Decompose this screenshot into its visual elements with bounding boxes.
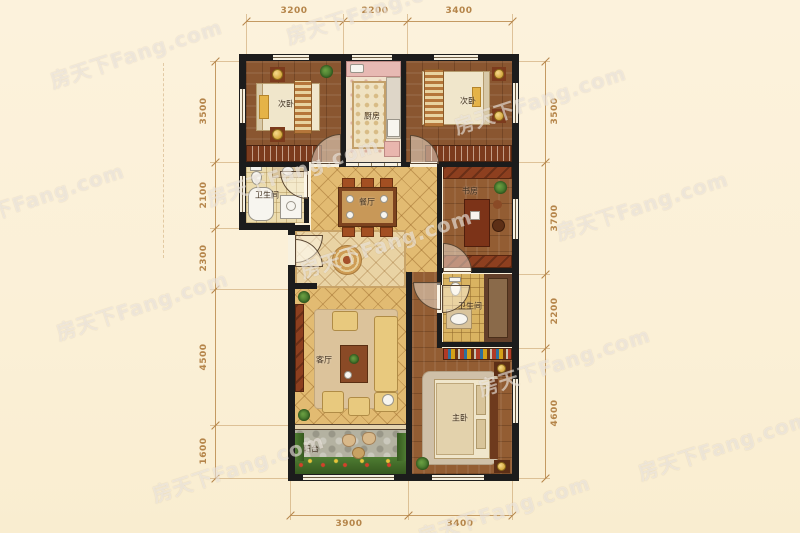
watermark: 房天下Fang.com (52, 263, 232, 346)
desk-paper (470, 211, 480, 220)
window (512, 83, 519, 123)
washer-door (286, 201, 296, 211)
wall-stub-living (288, 283, 317, 289)
lamp (497, 364, 506, 373)
table-flowers (349, 354, 359, 364)
watermark: 房天下Fang.com (552, 163, 732, 246)
kitchen-sink (350, 64, 364, 73)
label-living: 客厅 (316, 355, 332, 366)
balcony-chair (342, 434, 356, 447)
dim-right-4: 4600 (550, 399, 560, 426)
dining-chair (361, 227, 374, 237)
desk-chair (492, 219, 505, 232)
room-corridor-tile (406, 230, 437, 272)
tv-cabinet (295, 304, 304, 392)
dim-left-2: 2100 (199, 181, 209, 208)
dimension-line-bottom (290, 515, 512, 516)
label-bedroom-topleft: 次卧 (278, 99, 294, 110)
plant (494, 181, 507, 194)
bookshelf (443, 348, 512, 360)
label-dining: 餐厅 (359, 197, 375, 208)
lamp (497, 462, 506, 471)
plate (344, 371, 352, 379)
sofa-long (374, 316, 398, 392)
window (239, 89, 246, 123)
fridge (387, 119, 400, 137)
window (239, 176, 246, 212)
plant (416, 457, 429, 470)
desk (464, 199, 490, 247)
sofa-single (348, 397, 370, 416)
lamp (494, 69, 504, 79)
floor-medallion (332, 245, 362, 275)
window (512, 379, 519, 423)
study-cabinet-top (443, 166, 512, 179)
lamp (272, 69, 283, 80)
bed-pillow (259, 95, 269, 119)
window (273, 54, 309, 61)
extension-dashed-line (163, 63, 164, 258)
plant (298, 409, 310, 421)
balcony-sliding-door (295, 424, 406, 430)
dim-bottom-2: 3400 (446, 519, 473, 529)
label-study: 书房 (462, 186, 478, 197)
sofa-single (332, 311, 358, 331)
wall-bath-right-bottom (437, 342, 512, 347)
pillow (476, 385, 486, 415)
wall-living-right (406, 272, 412, 474)
balcony-table (352, 447, 365, 459)
balcony-plants-right (397, 433, 406, 461)
label-kitchen: 厨房 (364, 111, 380, 122)
dimension-line-top (246, 21, 512, 22)
window (352, 54, 392, 61)
label-balcony: 阳台 (303, 444, 319, 455)
window (432, 474, 484, 481)
lamp (272, 129, 283, 140)
watermark: 房天下Fang.com (0, 155, 128, 238)
dim-left-5: 1600 (199, 437, 209, 464)
window (434, 54, 478, 61)
side-table (382, 394, 394, 406)
plate (346, 195, 354, 203)
dim-left-4: 4500 (199, 343, 209, 370)
lamp (494, 111, 504, 121)
sink (450, 313, 468, 325)
flower-pot (493, 200, 502, 209)
entry-opening (288, 235, 295, 265)
label-bedroom-topright: 次卧 (460, 96, 476, 107)
dim-left-3: 2300 (199, 244, 209, 271)
floorplan-image: 3200 2200 3400 3500 2100 2300 4500 1600 … (0, 0, 800, 533)
wall-kitchen-right (401, 61, 406, 162)
floorplan: 次卧 厨房 次卧 卫生间 餐厅 书房 卫生间 客厅 主卧 阳台 (246, 61, 512, 481)
label-bath-left: 卫生间 (255, 190, 279, 201)
dim-right-1: 3500 (550, 97, 560, 124)
balcony-chair (362, 432, 376, 445)
bed-runner (424, 69, 444, 127)
watermark: 房天下Fang.com (46, 11, 226, 94)
balcony-window (303, 474, 394, 481)
wall-central (437, 162, 442, 348)
sofa-single (322, 391, 344, 413)
dim-left-1: 3500 (199, 97, 209, 124)
label-bath-right: 卫生间 (458, 301, 482, 312)
dining-chair (342, 227, 355, 237)
plate (346, 211, 354, 219)
watermark: 房天下Fang.com (634, 403, 800, 486)
plant (298, 291, 310, 303)
label-master: 主卧 (452, 413, 468, 424)
bed-headboard (483, 71, 490, 125)
window (512, 199, 519, 239)
plate (380, 211, 388, 219)
kitchen-sliding-door (346, 162, 401, 167)
stove (384, 141, 400, 157)
dim-top-1: 3200 (280, 6, 307, 16)
plant (320, 65, 333, 78)
dim-right-3: 2200 (550, 297, 560, 324)
master-headboard (490, 379, 498, 459)
dim-top-2: 2200 (361, 6, 388, 16)
dim-right-2: 3700 (550, 204, 560, 231)
dim-top-3: 3400 (445, 6, 472, 16)
wall-stub-dining (288, 225, 310, 231)
wall-notch (239, 223, 295, 230)
shower-glass (488, 278, 508, 338)
dim-bottom-1: 3900 (335, 519, 362, 529)
bed-runner (294, 80, 312, 134)
plate (380, 195, 388, 203)
dimension-line-right (545, 61, 546, 478)
pillow (476, 419, 486, 449)
balcony-flower-border (295, 457, 406, 474)
wall-kitchen-left (341, 61, 346, 162)
dining-chair (380, 227, 393, 237)
dimension-line-left (215, 61, 216, 478)
